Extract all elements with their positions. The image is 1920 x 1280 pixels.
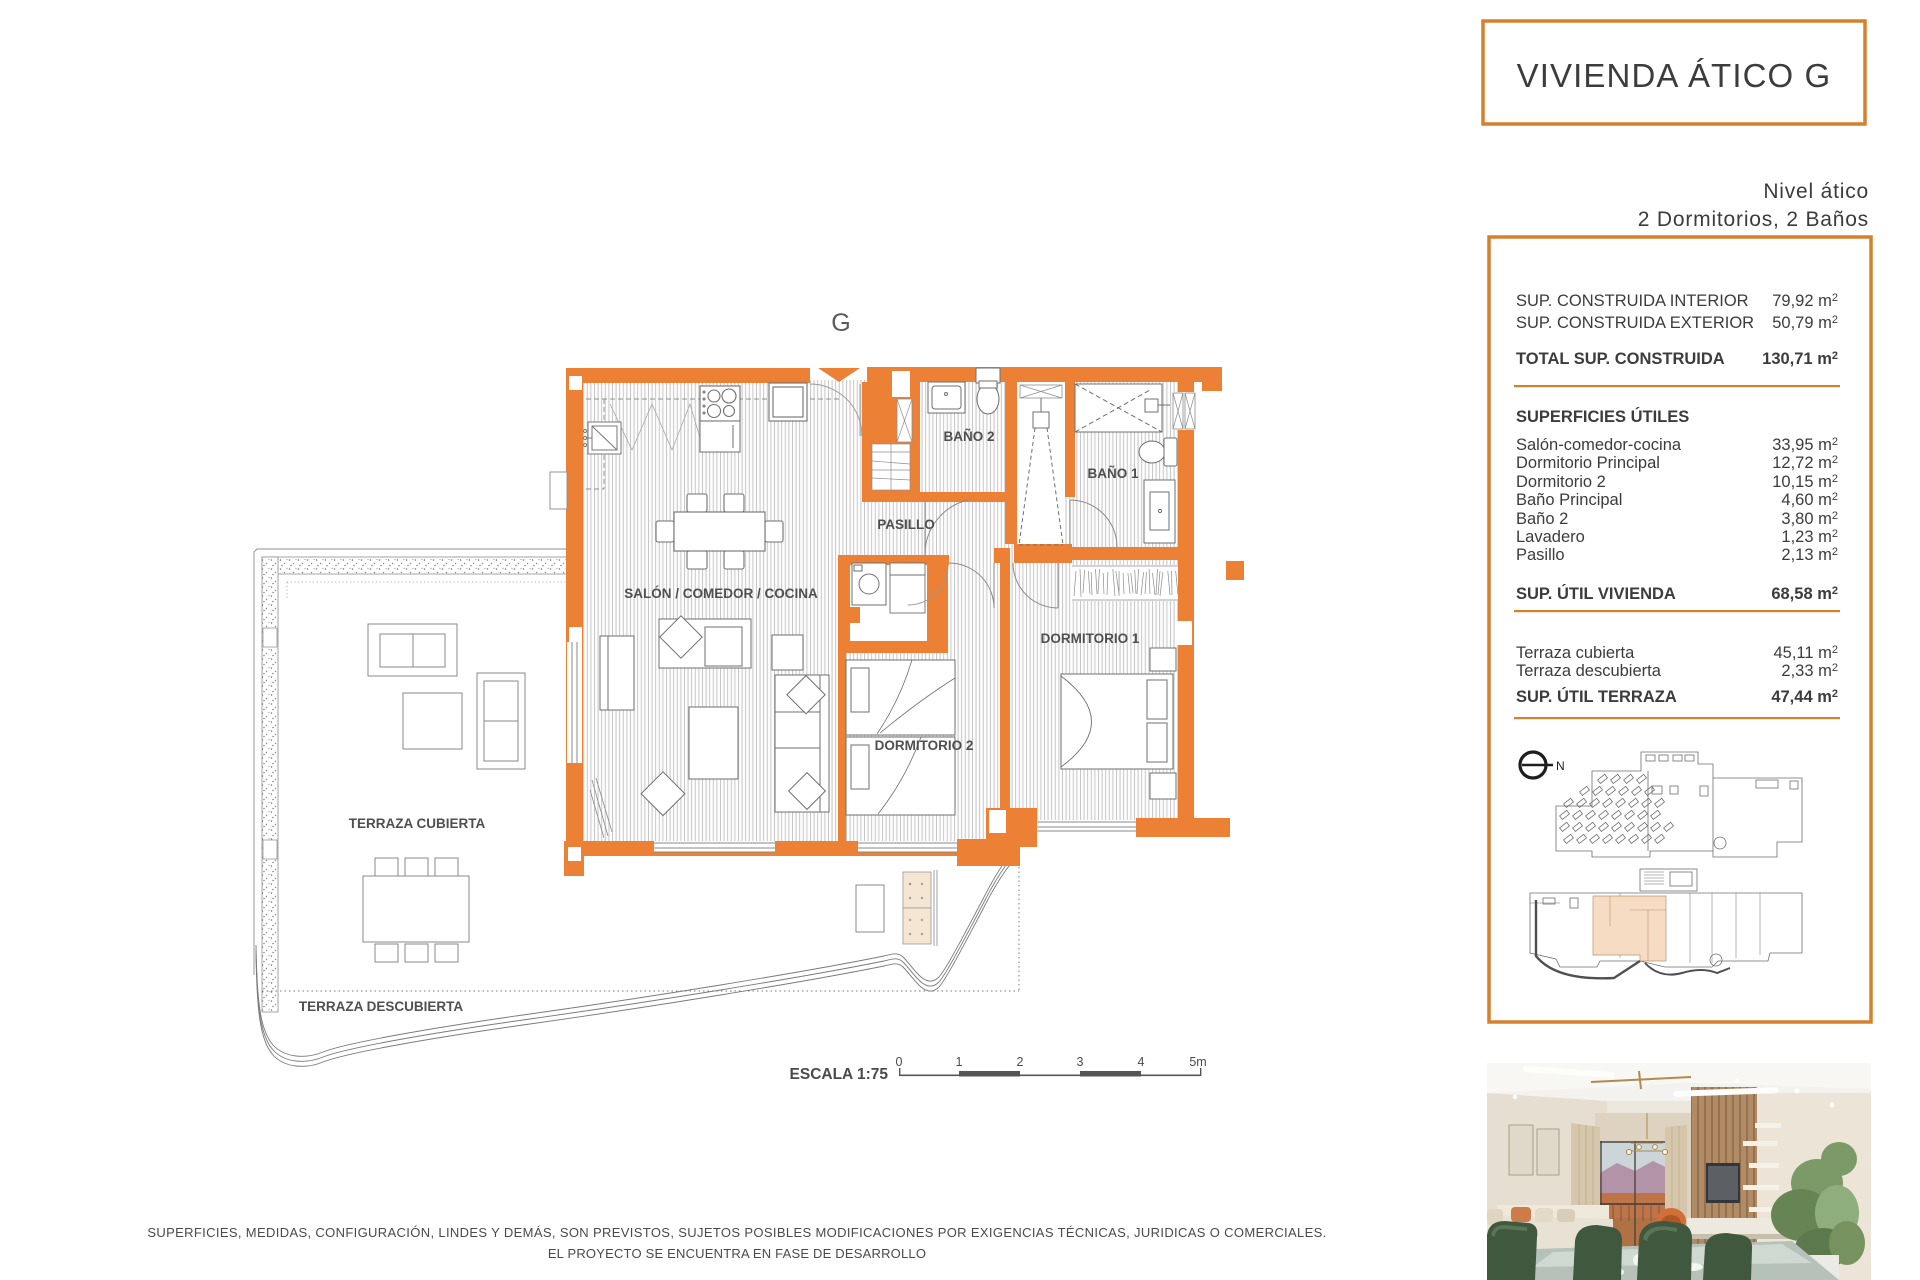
svg-text:4,60 m2: 4,60 m2 [1781,491,1838,509]
svg-text:2,13 m2: 2,13 m2 [1781,546,1838,564]
svg-text:1: 1 [956,1055,963,1069]
svg-text:79,92 m2: 79,92 m2 [1772,292,1838,310]
svg-text:SUPERFICIES, MEDIDAS, CONFIGUR: SUPERFICIES, MEDIDAS, CONFIGURACIÓN, LIN… [147,1225,1326,1240]
svg-text:N: N [1556,759,1565,773]
svg-text:SALÓN / COMEDOR / COCINA: SALÓN / COMEDOR / COCINA [624,586,818,601]
svg-text:47,44 m2: 47,44 m2 [1771,688,1838,706]
svg-text:2,33 m2: 2,33 m2 [1781,662,1838,680]
svg-text:TERRAZA DESCUBIERTA: TERRAZA DESCUBIERTA [299,999,463,1014]
svg-text:Lavadero: Lavadero [1516,528,1585,546]
svg-text:EL PROYECTO SE ENCUENTRA EN FA: EL PROYECTO SE ENCUENTRA EN FASE DE DESA… [548,1246,926,1261]
svg-text:4: 4 [1138,1055,1145,1069]
svg-text:50,79 m2: 50,79 m2 [1772,314,1838,332]
svg-text:12,72 m2: 12,72 m2 [1772,454,1838,472]
svg-text:2 Dormitorios, 2 Baños: 2 Dormitorios, 2 Baños [1638,208,1869,231]
svg-text:2: 2 [1017,1055,1024,1069]
svg-text:ESCALA 1:75: ESCALA 1:75 [790,1066,889,1083]
svg-text:BAÑO 1: BAÑO 1 [1087,466,1138,481]
svg-text:SUP. CONSTRUIDA INTERIOR: SUP. CONSTRUIDA INTERIOR [1516,292,1749,310]
svg-text:68,58 m2: 68,58 m2 [1771,585,1838,603]
svg-text:BAÑO 2: BAÑO 2 [943,429,994,444]
svg-text:Terraza descubierta: Terraza descubierta [1516,662,1662,680]
svg-text:G: G [831,309,850,337]
svg-text:3,80 m2: 3,80 m2 [1781,510,1838,528]
svg-text:3: 3 [1077,1055,1084,1069]
svg-text:SUP. ÚTIL VIVIENDA: SUP. ÚTIL VIVIENDA [1516,584,1676,603]
svg-text:Baño 2: Baño 2 [1516,510,1568,528]
svg-text:Baño Principal: Baño Principal [1516,491,1622,509]
svg-text:Nivel ático: Nivel ático [1763,180,1869,203]
svg-text:Pasillo: Pasillo [1516,546,1565,564]
svg-text:DORMITORIO 2: DORMITORIO 2 [875,738,974,753]
svg-text:5m: 5m [1189,1055,1206,1069]
svg-text:0: 0 [896,1055,903,1069]
svg-text:45,11 m2: 45,11 m2 [1773,644,1838,662]
svg-text:Dormitorio Principal: Dormitorio Principal [1516,454,1660,472]
svg-text:PASILLO: PASILLO [877,517,935,532]
svg-text:TOTAL SUP. CONSTRUIDA: TOTAL SUP. CONSTRUIDA [1516,350,1725,368]
svg-text:Terraza cubierta: Terraza cubierta [1516,644,1635,662]
svg-text:SUPERFICIES ÚTILES: SUPERFICIES ÚTILES [1516,407,1689,426]
svg-text:Salón-comedor-cocina: Salón-comedor-cocina [1516,436,1682,454]
svg-text:10,15 m2: 10,15 m2 [1772,473,1838,491]
svg-text:33,95 m2: 33,95 m2 [1772,436,1838,454]
svg-text:Dormitorio 2: Dormitorio 2 [1516,473,1606,491]
svg-text:TERRAZA CUBIERTA: TERRAZA CUBIERTA [349,816,486,831]
svg-text:VIVIENDA ÁTICO G: VIVIENDA ÁTICO G [1517,57,1832,94]
svg-text:SUP. CONSTRUIDA EXTERIOR: SUP. CONSTRUIDA EXTERIOR [1516,314,1754,332]
svg-text:130,71 m2: 130,71 m2 [1762,350,1838,368]
svg-text:DORMITORIO 1: DORMITORIO 1 [1041,631,1140,646]
svg-text:1,23 m2: 1,23 m2 [1781,528,1838,546]
svg-text:SUP. ÚTIL TERRAZA: SUP. ÚTIL TERRAZA [1516,687,1677,706]
